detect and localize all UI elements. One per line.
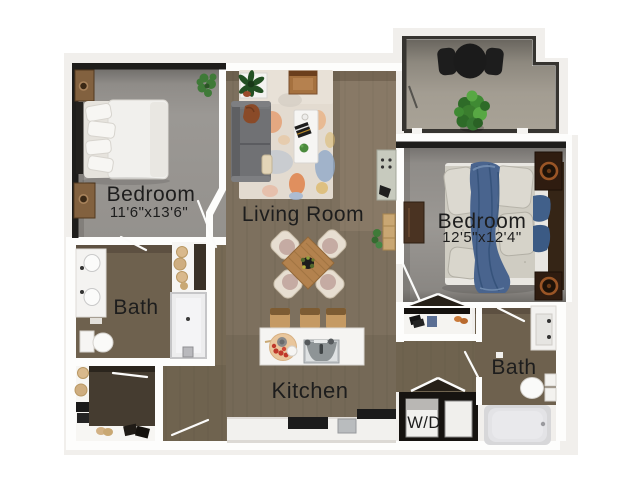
svg-text:W/D: W/D (407, 414, 441, 432)
svg-text:Kitchen: Kitchen (272, 378, 349, 403)
svg-text:Bath: Bath (491, 356, 536, 379)
svg-text:12'5"x12'4": 12'5"x12'4" (442, 229, 521, 246)
svg-text:Living Room: Living Room (242, 203, 364, 226)
svg-text:Bedroom: Bedroom (107, 183, 196, 206)
svg-text:11'6"x13'6": 11'6"x13'6" (110, 204, 188, 221)
svg-text:Bath: Bath (113, 296, 158, 319)
